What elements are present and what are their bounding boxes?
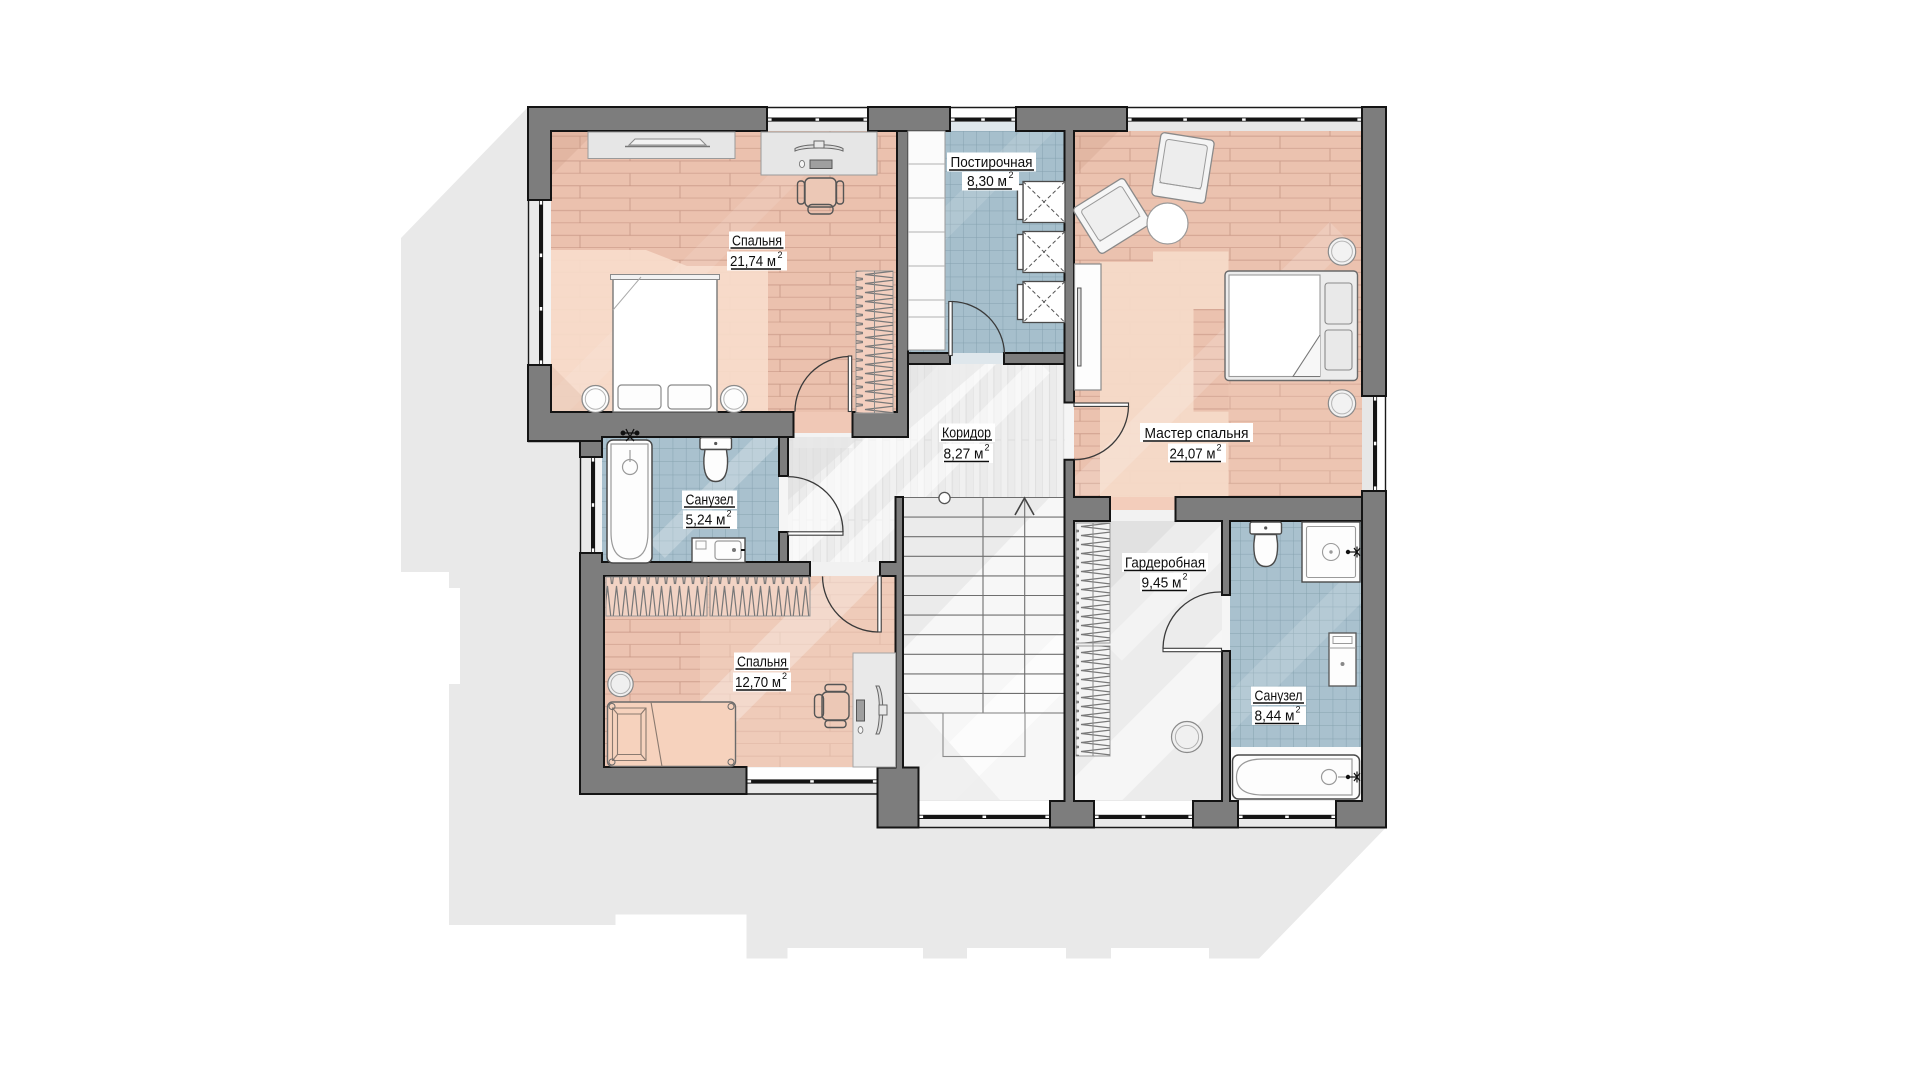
svg-text:2: 2 [1295, 705, 1300, 715]
svg-text:2: 2 [1216, 443, 1221, 453]
svg-text:2: 2 [984, 443, 989, 453]
svg-text:Спальня: Спальня [737, 654, 787, 671]
svg-text:2: 2 [777, 250, 782, 260]
svg-text:9,45 м: 9,45 м [1142, 575, 1182, 592]
svg-text:5,24 м: 5,24 м [686, 512, 726, 529]
svg-text:2: 2 [782, 671, 787, 681]
svg-text:Гардеробная: Гардеробная [1125, 555, 1205, 572]
svg-text:8,27 м: 8,27 м [944, 446, 984, 463]
svg-text:Коридор: Коридор [942, 425, 991, 442]
svg-text:8,44 м: 8,44 м [1255, 708, 1295, 725]
svg-text:21,74 м: 21,74 м [730, 253, 776, 270]
svg-text:Мастер спальня: Мастер спальня [1145, 425, 1249, 442]
svg-text:Постирочная: Постирочная [951, 154, 1033, 171]
svg-text:Санузел: Санузел [686, 492, 734, 509]
svg-text:Санузел: Санузел [1255, 688, 1303, 705]
svg-text:Спальня: Спальня [732, 233, 782, 250]
svg-text:12,70 м: 12,70 м [735, 674, 781, 691]
svg-text:2: 2 [1182, 572, 1187, 582]
svg-text:2: 2 [726, 509, 731, 519]
svg-text:24,07 м: 24,07 м [1170, 446, 1216, 463]
svg-text:2: 2 [1008, 170, 1013, 180]
svg-text:8,30 м: 8,30 м [967, 173, 1007, 190]
